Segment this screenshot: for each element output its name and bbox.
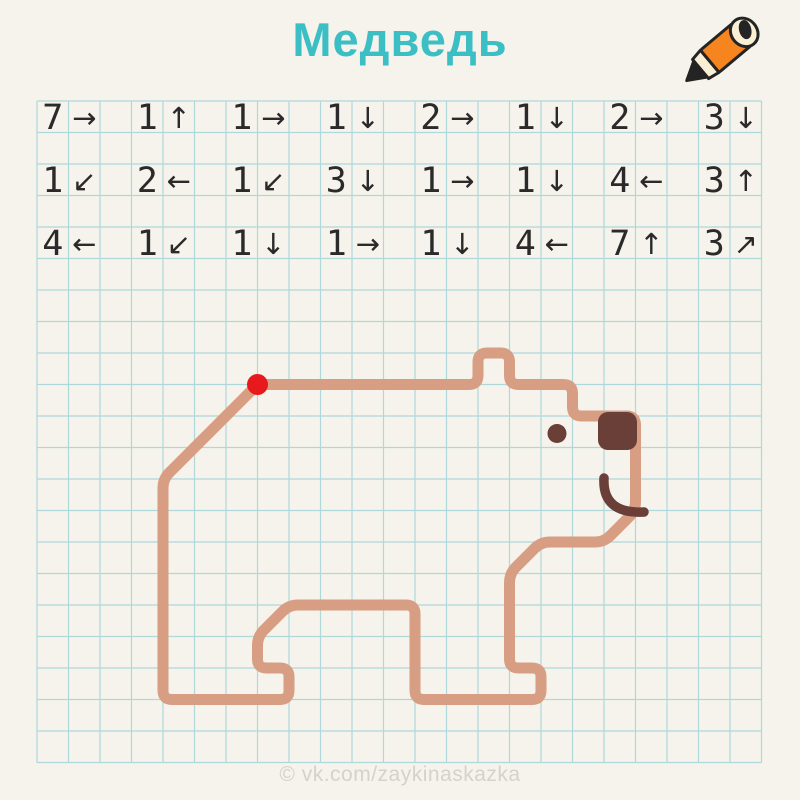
instruction-step: 1↓ [326, 98, 380, 138]
instruction-step: 1→ [326, 224, 380, 264]
instruction-grid: 7→1↑1→1↓2→1↓2→3↓1↙2←1↙3↓1→1↓4←3↑4←1↙1↓1→… [42, 98, 758, 264]
instruction-count: 2 [420, 98, 441, 138]
instruction-step: 2→ [609, 98, 663, 138]
instruction-count: 1 [231, 98, 252, 138]
instruction-arrow-icon: ↓ [356, 101, 380, 135]
instruction-arrow-icon: ↓ [450, 227, 474, 261]
start-dot [247, 374, 268, 395]
instruction-count: 4 [42, 224, 63, 264]
instruction-step: 1↑ [137, 98, 191, 138]
instruction-count: 7 [609, 224, 630, 264]
bear-drawing [163, 353, 644, 700]
instruction-step: 7→ [42, 98, 96, 138]
instruction-arrow-icon: ← [639, 164, 663, 198]
instruction-count: 3 [704, 161, 725, 201]
instruction-step: 7↑ [609, 224, 663, 264]
instruction-step: 3↓ [326, 161, 380, 201]
instruction-count: 3 [326, 161, 347, 201]
instruction-step: 1↓ [231, 224, 285, 264]
instruction-arrow-icon: ↓ [545, 101, 569, 135]
instruction-arrow-icon: ↓ [734, 101, 758, 135]
instruction-count: 2 [609, 98, 630, 138]
instruction-count: 1 [231, 224, 252, 264]
instruction-arrow-icon: ← [167, 164, 191, 198]
bear-nose [598, 412, 637, 450]
instruction-arrow-icon: ↙ [72, 164, 96, 198]
grid-board: 7→1↑1→1↓2→1↓2→3↓1↙2←1↙3↓1→1↓4←3↑4←1↙1↓1→… [0, 0, 800, 800]
instruction-arrow-icon: ↓ [545, 164, 569, 198]
instruction-step: 2← [137, 161, 191, 201]
instruction-arrow-icon: ↑ [167, 101, 191, 135]
instruction-arrow-icon: → [72, 101, 96, 135]
instruction-arrow-icon: → [356, 227, 380, 261]
instruction-step: 1→ [231, 98, 285, 138]
instruction-step: 4← [42, 224, 96, 264]
instruction-arrow-icon: ↑ [734, 164, 758, 198]
instruction-step: 2→ [420, 98, 474, 138]
instruction-step: 1↓ [420, 224, 474, 264]
instruction-count: 1 [231, 161, 252, 201]
instruction-step: 1↙ [137, 224, 191, 264]
instruction-count: 1 [420, 161, 441, 201]
instruction-count: 1 [515, 98, 536, 138]
instruction-step: 3↗ [704, 224, 758, 264]
instruction-arrow-icon: → [261, 101, 285, 135]
instruction-arrow-icon: ↑ [639, 227, 663, 261]
instruction-count: 2 [137, 161, 158, 201]
bear-eye [548, 424, 567, 443]
instruction-count: 3 [704, 224, 725, 264]
instruction-step: 3↑ [704, 161, 758, 201]
instruction-count: 7 [42, 98, 63, 138]
instruction-step: 4← [609, 161, 663, 201]
instruction-count: 4 [515, 224, 536, 264]
instruction-step: 1↙ [42, 161, 96, 201]
instruction-arrow-icon: → [639, 101, 663, 135]
instruction-arrow-icon: ↙ [261, 164, 285, 198]
instruction-count: 3 [704, 98, 725, 138]
instruction-arrow-icon: ↓ [261, 227, 285, 261]
instruction-count: 1 [515, 161, 536, 201]
instruction-count: 1 [137, 224, 158, 264]
instruction-step: 1→ [420, 161, 474, 201]
instruction-arrow-icon: ↗ [734, 227, 758, 261]
instruction-arrow-icon: ← [545, 227, 569, 261]
instruction-count: 1 [42, 161, 63, 201]
instruction-arrow-icon: ← [72, 227, 96, 261]
instruction-arrow-icon: → [450, 101, 474, 135]
instruction-count: 1 [326, 224, 347, 264]
bear-outline-path [163, 353, 636, 700]
instruction-step: 4← [515, 224, 569, 264]
instruction-step: 1↙ [231, 161, 285, 201]
instruction-arrow-icon: → [450, 164, 474, 198]
instruction-step: 1↓ [515, 98, 569, 138]
instruction-count: 4 [609, 161, 630, 201]
instruction-arrow-icon: ↙ [167, 227, 191, 261]
instruction-count: 1 [420, 224, 441, 264]
instruction-arrow-icon: ↓ [356, 164, 380, 198]
instruction-step: 1↓ [515, 161, 569, 201]
instruction-step: 3↓ [704, 98, 758, 138]
instruction-count: 1 [137, 98, 158, 138]
watermark: © vk.com/zaykinaskazka [0, 763, 800, 787]
instruction-count: 1 [326, 98, 347, 138]
